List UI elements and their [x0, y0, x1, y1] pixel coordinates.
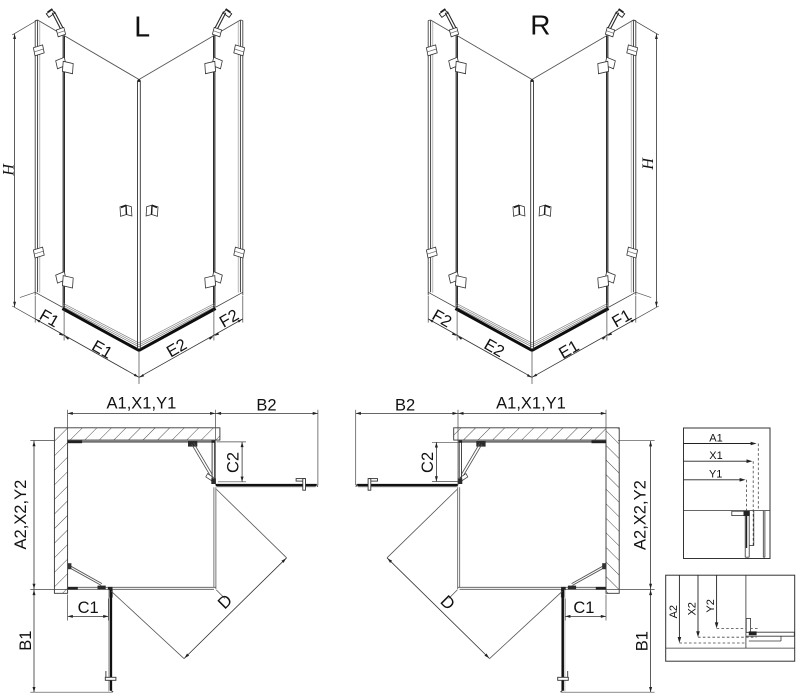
- svg-text:A1,X1,Y1: A1,X1,Y1: [496, 395, 566, 413]
- svg-text:B1: B1: [634, 631, 652, 651]
- svg-text:H: H: [0, 163, 17, 177]
- svg-text:A2,X2,Y2: A2,X2,Y2: [12, 480, 30, 550]
- svg-text:C1: C1: [78, 599, 99, 617]
- svg-text:L: L: [134, 11, 150, 43]
- svg-text:Y1: Y1: [709, 469, 722, 481]
- svg-text:C2: C2: [419, 452, 437, 473]
- svg-text:C1: C1: [573, 599, 594, 617]
- svg-text:X2: X2: [686, 602, 698, 615]
- svg-text:A1,X1,Y1: A1,X1,Y1: [107, 395, 177, 413]
- svg-text:A1: A1: [709, 432, 722, 444]
- svg-text:A2,X2,Y2: A2,X2,Y2: [631, 480, 649, 550]
- svg-text:H: H: [640, 157, 657, 171]
- svg-text:B1: B1: [17, 631, 35, 651]
- svg-text:Y2: Y2: [705, 599, 717, 612]
- svg-text:X1: X1: [709, 450, 722, 462]
- svg-text:B2: B2: [395, 397, 415, 415]
- svg-text:B2: B2: [256, 397, 276, 415]
- svg-text:C2: C2: [225, 452, 243, 473]
- svg-text:A2: A2: [668, 605, 680, 618]
- svg-text:R: R: [530, 10, 550, 41]
